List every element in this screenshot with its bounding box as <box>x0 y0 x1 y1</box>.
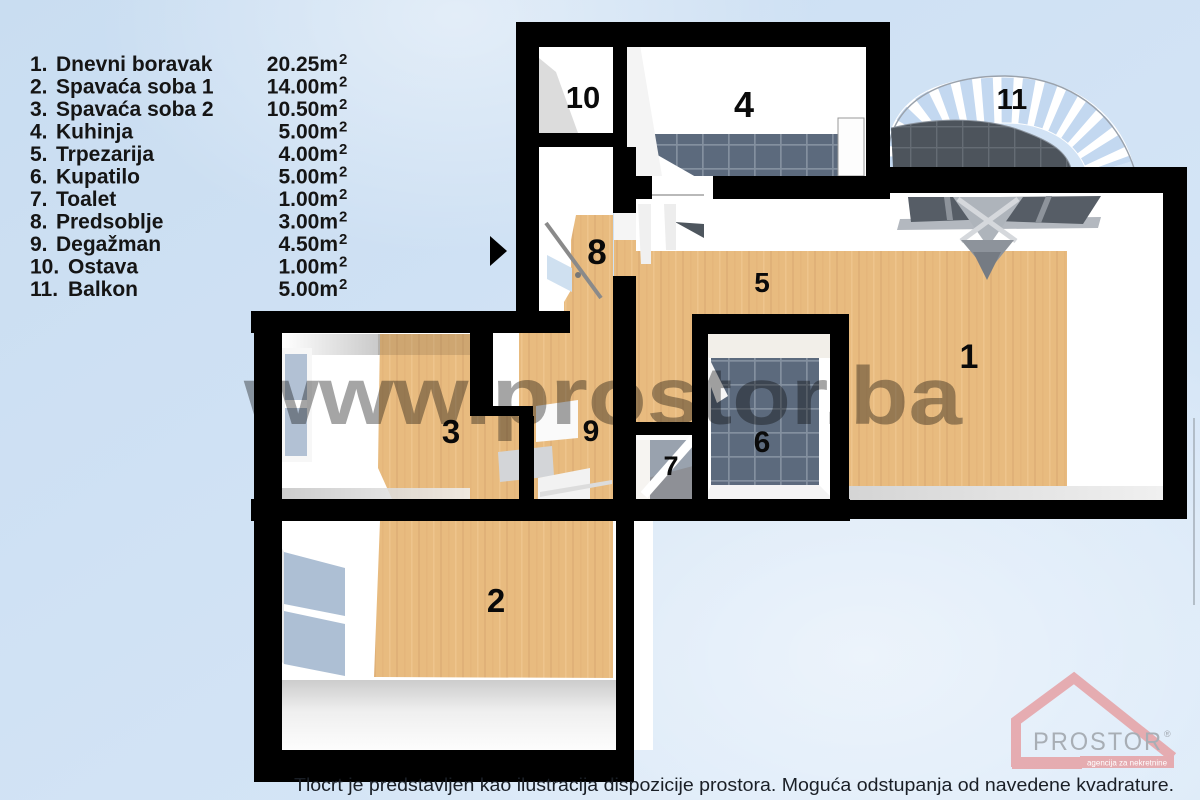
svg-text:14.00m: 14.00m <box>267 76 338 99</box>
svg-text:11: 11 <box>997 84 1028 116</box>
svg-text:4: 4 <box>734 84 754 125</box>
svg-text:Tlocrt je predstavljen kao ilu: Tlocrt je predstavljen kao ilustracija d… <box>294 775 1174 795</box>
svg-text:5.00m: 5.00m <box>278 121 338 144</box>
svg-text:Degažman: Degažman <box>56 233 161 256</box>
svg-text:2: 2 <box>339 231 347 248</box>
svg-text:Toalet: Toalet <box>56 188 116 211</box>
svg-text:2: 2 <box>339 164 347 181</box>
svg-text:3.00m: 3.00m <box>278 211 338 234</box>
svg-text:2: 2 <box>339 96 347 113</box>
svg-text:5: 5 <box>754 267 770 298</box>
svg-text:www.prostor.ba: www.prostor.ba <box>243 351 964 442</box>
svg-text:2: 2 <box>339 141 347 158</box>
svg-text:2: 2 <box>339 74 347 91</box>
svg-text:Spavaća soba 2: Spavaća soba 2 <box>56 98 214 121</box>
svg-text:4.50m: 4.50m <box>278 233 338 256</box>
svg-text:4.: 4. <box>30 121 48 144</box>
svg-text:7.: 7. <box>30 188 48 211</box>
svg-text:8.: 8. <box>30 211 48 234</box>
svg-text:10.50m: 10.50m <box>267 98 338 121</box>
svg-text:5.: 5. <box>30 143 48 166</box>
svg-text:1.00m: 1.00m <box>278 188 338 211</box>
svg-text:Predsoblje: Predsoblje <box>56 211 163 234</box>
svg-text:Trpezarija: Trpezarija <box>56 143 154 166</box>
svg-text:5.00m: 5.00m <box>278 166 338 189</box>
svg-text:10.: 10. <box>30 256 59 279</box>
svg-text:agencija za nekretnine: agencija za nekretnine <box>1087 759 1168 768</box>
svg-text:Kuhinja: Kuhinja <box>56 121 133 144</box>
svg-text:5.00m: 5.00m <box>278 278 338 301</box>
svg-text:PROSTOR: PROSTOR <box>1033 728 1163 756</box>
svg-text:8: 8 <box>587 233 606 272</box>
svg-text:7: 7 <box>663 451 678 481</box>
svg-text:Spavaća soba 1: Spavaća soba 1 <box>56 76 214 99</box>
svg-text:1.00m: 1.00m <box>278 256 338 279</box>
svg-text:Kupatilo: Kupatilo <box>56 166 140 189</box>
svg-text:®: ® <box>1164 729 1171 739</box>
svg-text:4.00m: 4.00m <box>278 143 338 166</box>
svg-text:11.: 11. <box>30 278 58 301</box>
svg-text:1: 1 <box>960 338 979 376</box>
svg-text:Dnevni boravak: Dnevni boravak <box>56 53 213 76</box>
svg-text:2: 2 <box>487 582 505 619</box>
svg-text:2: 2 <box>339 254 347 271</box>
svg-text:9.: 9. <box>30 233 48 256</box>
svg-text:2: 2 <box>339 186 347 203</box>
svg-text:10: 10 <box>566 80 600 115</box>
svg-text:2: 2 <box>339 119 347 136</box>
svg-text:Balkon: Balkon <box>68 278 138 301</box>
svg-text:2: 2 <box>339 276 347 293</box>
svg-text:1.: 1. <box>30 53 48 76</box>
svg-text:20.25m: 20.25m <box>267 53 338 76</box>
svg-text:2.: 2. <box>30 76 48 99</box>
svg-text:Ostava: Ostava <box>68 256 138 279</box>
svg-text:2: 2 <box>339 51 347 68</box>
svg-text:3.: 3. <box>30 98 48 121</box>
svg-text:2: 2 <box>339 209 347 226</box>
svg-text:6.: 6. <box>30 166 48 189</box>
